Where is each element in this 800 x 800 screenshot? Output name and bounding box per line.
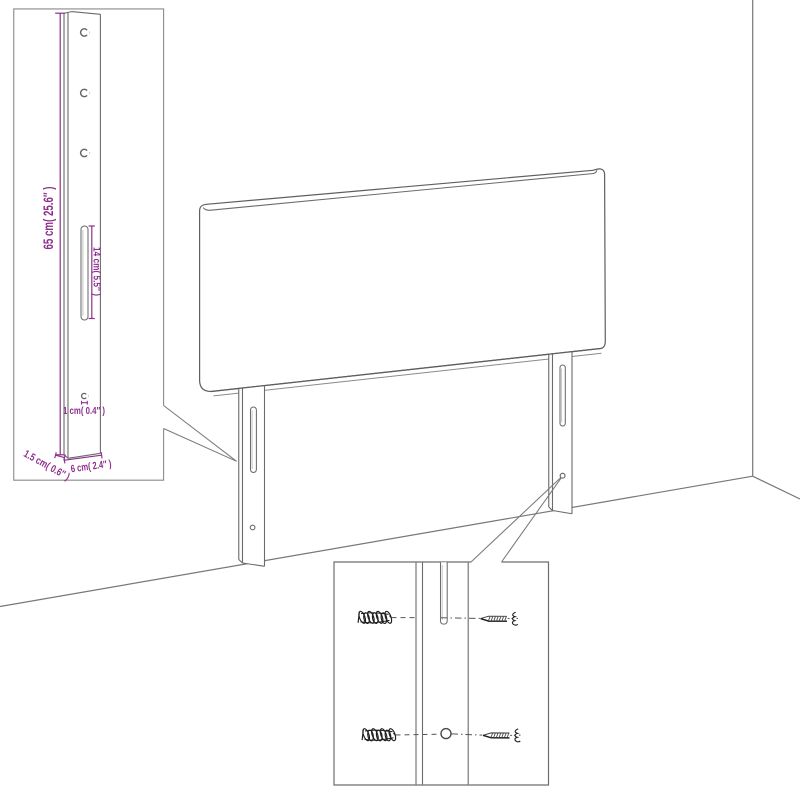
- svg-text:14 cm( 5.5″ ): 14 cm( 5.5″ ): [90, 247, 102, 296]
- svg-text:65 cm( 25.6″ ): 65 cm( 25.6″ ): [41, 187, 56, 250]
- svg-text:1 cm( 0.4″ ): 1 cm( 0.4″ ): [63, 405, 105, 417]
